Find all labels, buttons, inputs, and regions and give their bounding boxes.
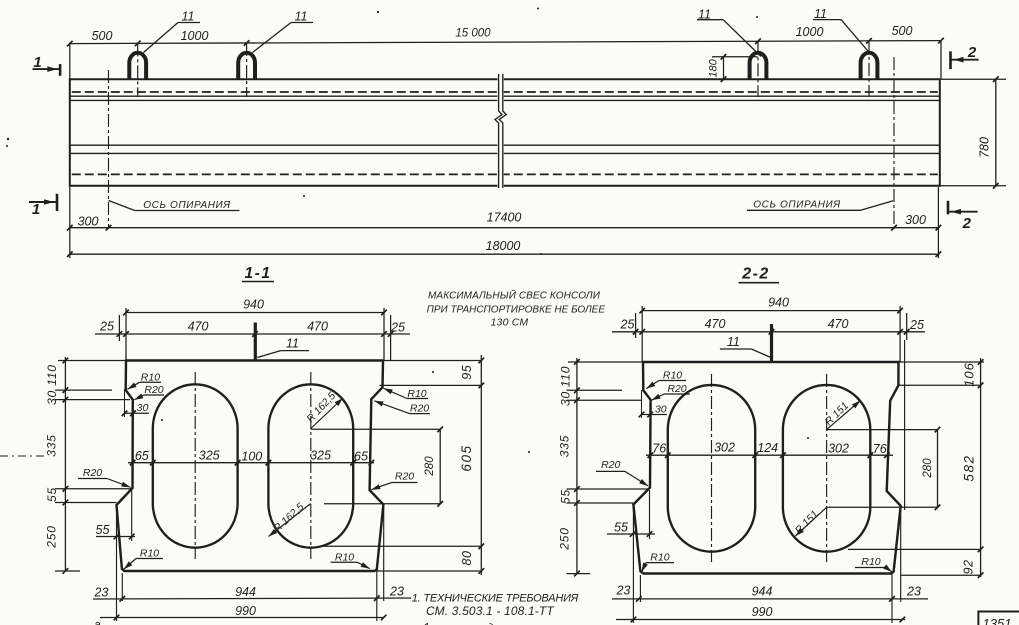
svg-text:76: 76 bbox=[652, 442, 666, 456]
svg-text:11: 11 bbox=[286, 337, 299, 351]
svg-text:250: 250 bbox=[558, 527, 572, 550]
svg-text:30: 30 bbox=[559, 391, 573, 406]
svg-text:11: 11 bbox=[182, 10, 195, 24]
svg-text:R 151: R 151 bbox=[793, 508, 821, 536]
svg-text:1351: 1351 bbox=[983, 616, 1012, 625]
svg-text:25: 25 bbox=[620, 318, 635, 332]
svg-text:1. ТЕХНИЧЕСКИЕ ТРЕБОВАНИЯ: 1. ТЕХНИЧЕСКИЕ ТРЕБОВАНИЯ bbox=[412, 593, 579, 605]
svg-text:18000: 18000 bbox=[486, 239, 521, 253]
svg-text:95: 95 bbox=[460, 365, 474, 380]
svg-text:R20: R20 bbox=[601, 459, 620, 471]
svg-text:92: 92 bbox=[961, 560, 975, 575]
svg-text:780: 780 bbox=[978, 137, 992, 158]
svg-text:2-2: 2-2 bbox=[741, 266, 770, 283]
svg-text:55: 55 bbox=[45, 487, 59, 502]
svg-text:325: 325 bbox=[199, 449, 220, 463]
svg-text:106: 106 bbox=[961, 362, 976, 387]
svg-text:325: 325 bbox=[310, 449, 331, 463]
svg-text:470: 470 bbox=[705, 317, 726, 331]
svg-text:944: 944 bbox=[235, 585, 256, 599]
svg-text:дата выпуска: дата выпуска bbox=[487, 621, 567, 625]
svg-text:130 СМ: 130 СМ bbox=[491, 317, 529, 329]
svg-text:R20: R20 bbox=[410, 403, 429, 415]
svg-text:470: 470 bbox=[307, 320, 328, 334]
svg-text:470: 470 bbox=[828, 317, 849, 331]
svg-text:55: 55 bbox=[614, 521, 628, 535]
svg-text:940: 940 bbox=[768, 296, 789, 310]
svg-text:2: 2 bbox=[967, 44, 977, 61]
svg-text:11: 11 bbox=[727, 335, 740, 349]
svg-text:R10: R10 bbox=[650, 552, 669, 564]
svg-text:335: 335 bbox=[45, 434, 59, 456]
svg-text:944: 944 bbox=[752, 585, 773, 599]
svg-text:80: 80 bbox=[460, 551, 474, 566]
svg-text:R10: R10 bbox=[335, 551, 354, 563]
svg-text:302: 302 bbox=[714, 441, 735, 455]
svg-text:55: 55 bbox=[559, 489, 573, 504]
svg-text:990: 990 bbox=[752, 605, 773, 619]
svg-text:1000: 1000 bbox=[181, 29, 209, 43]
svg-text:940: 940 bbox=[243, 298, 264, 312]
svg-text:маркировку: маркировку bbox=[352, 622, 418, 625]
svg-text:1: 1 bbox=[32, 201, 40, 218]
svg-text:2: 2 bbox=[962, 215, 972, 232]
svg-text:СМ. 3.503.1 - 108.1-ТТ: СМ. 3.503.1 - 108.1-ТТ bbox=[426, 604, 555, 618]
svg-text:25: 25 bbox=[99, 320, 114, 334]
svg-text:ПРИ ТРАНСПОРТИРОВКЕ НЕ БОЛЕЕ: ПРИ ТРАНСПОРТИРОВКЕ НЕ БОЛЕЕ bbox=[427, 304, 606, 315]
svg-text:23: 23 bbox=[615, 584, 630, 598]
svg-text:17400: 17400 bbox=[487, 211, 522, 225]
svg-text:R20: R20 bbox=[83, 467, 102, 479]
svg-text:470: 470 bbox=[188, 320, 209, 334]
svg-text:65: 65 bbox=[354, 450, 368, 464]
svg-text:1: 1 bbox=[423, 621, 430, 625]
svg-text:500: 500 bbox=[92, 29, 113, 43]
svg-text:25: 25 bbox=[390, 321, 405, 335]
svg-text:23: 23 bbox=[906, 585, 921, 599]
svg-text:R10: R10 bbox=[861, 556, 880, 568]
svg-text:R20: R20 bbox=[395, 471, 414, 483]
svg-text:ОСЬ ОПИРАНИЯ: ОСЬ ОПИРАНИЯ bbox=[753, 200, 840, 211]
svg-text:582: 582 bbox=[961, 454, 976, 481]
svg-text:110: 110 bbox=[559, 366, 573, 388]
svg-text:110: 110 bbox=[45, 364, 59, 386]
svg-text:1-1: 1-1 bbox=[245, 265, 272, 282]
svg-text:124: 124 bbox=[757, 441, 778, 455]
svg-text:1000: 1000 bbox=[796, 25, 824, 39]
svg-text:30: 30 bbox=[137, 402, 149, 414]
svg-text:ОСЬ ОПИРАНИЯ: ОСЬ ОПИРАНИЯ bbox=[143, 200, 230, 211]
svg-text:R20: R20 bbox=[667, 383, 686, 395]
svg-text:23: 23 bbox=[94, 586, 109, 600]
svg-text:335: 335 bbox=[558, 435, 572, 457]
svg-text:250: 250 bbox=[45, 525, 59, 548]
svg-text:100: 100 bbox=[241, 450, 262, 464]
svg-text:500: 500 bbox=[892, 24, 913, 38]
svg-text:280: 280 bbox=[922, 458, 934, 479]
svg-text:300: 300 bbox=[78, 215, 99, 229]
svg-text:30: 30 bbox=[45, 390, 59, 405]
svg-text:23: 23 bbox=[389, 585, 404, 599]
svg-text:а: а bbox=[94, 618, 101, 625]
svg-text:МАКСИМАЛЬНЫЙ СВЕС КОНСОЛИ: МАКСИМАЛЬНЫЙ СВЕС КОНСОЛИ bbox=[428, 289, 601, 302]
svg-text:15 000: 15 000 bbox=[455, 28, 491, 40]
svg-text:990: 990 bbox=[235, 604, 256, 618]
svg-text:280: 280 bbox=[424, 456, 436, 477]
svg-text:180: 180 bbox=[708, 58, 720, 77]
svg-text:65: 65 bbox=[135, 449, 149, 463]
svg-text:302: 302 bbox=[828, 442, 849, 456]
svg-text:R10: R10 bbox=[140, 548, 159, 560]
svg-text:76: 76 bbox=[873, 442, 887, 456]
svg-text:R 162,5: R 162,5 bbox=[271, 501, 306, 535]
svg-text:R10: R10 bbox=[663, 369, 682, 381]
svg-text:11: 11 bbox=[295, 10, 308, 24]
svg-text:300: 300 bbox=[905, 213, 926, 227]
svg-text:R20: R20 bbox=[144, 384, 163, 396]
svg-text:1: 1 bbox=[33, 54, 41, 71]
svg-text:55: 55 bbox=[96, 523, 110, 537]
svg-text:30: 30 bbox=[655, 404, 667, 416]
svg-text:605: 605 bbox=[459, 444, 474, 471]
svg-text:25: 25 bbox=[909, 318, 924, 332]
